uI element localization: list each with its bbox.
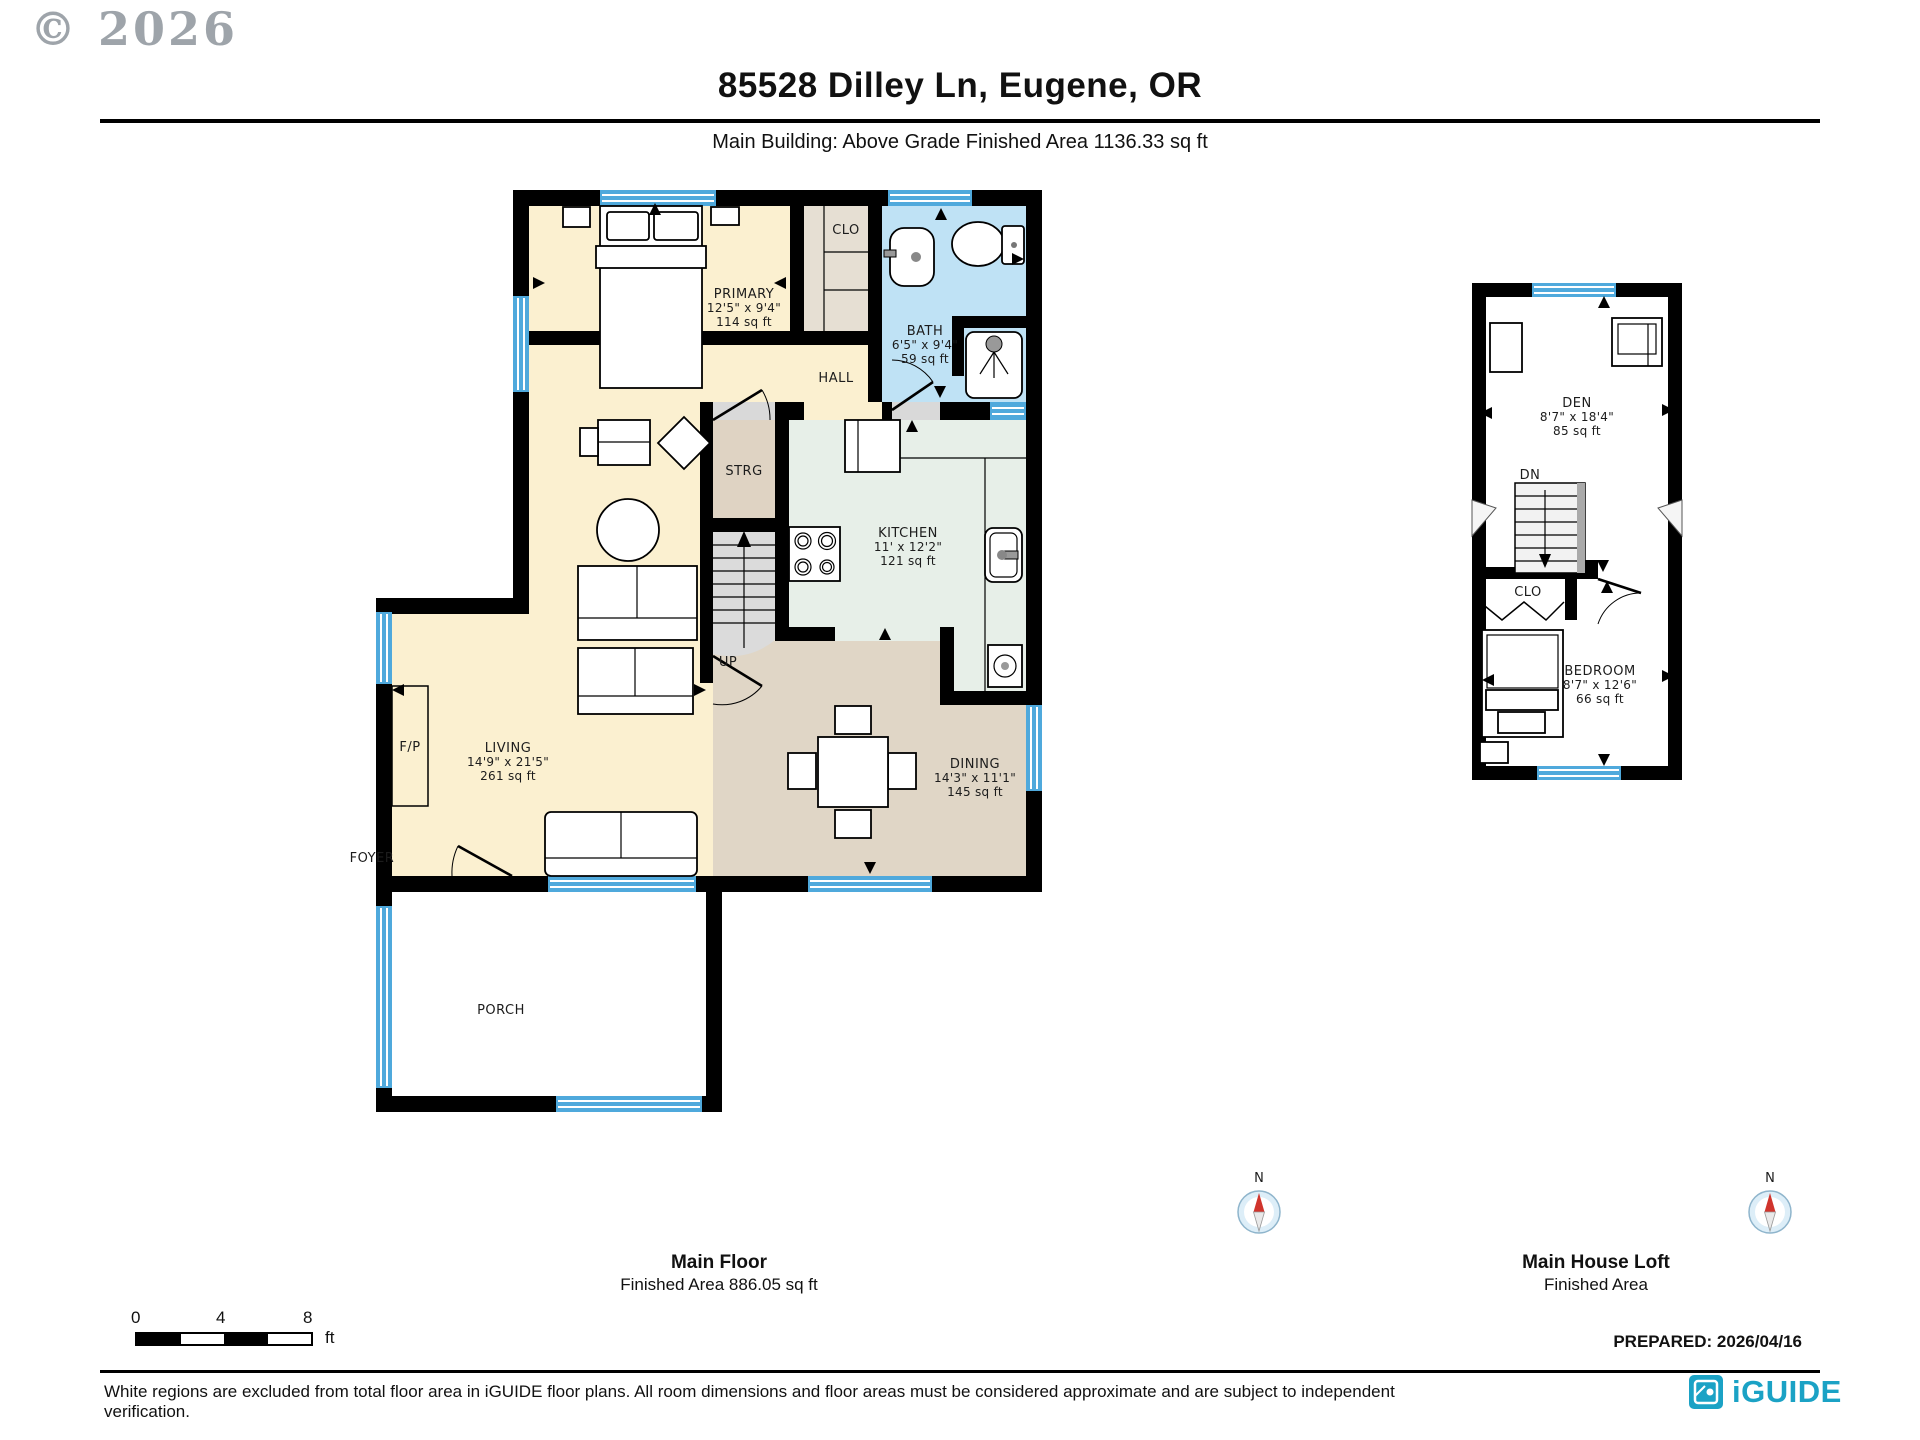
window <box>990 402 1026 420</box>
floor-plan-page: © 2026 85528 Dilley Ln, Eugene, OR Main … <box>0 0 1920 1440</box>
loft-bedroom-dims: 8'7" x 12'6" <box>1563 678 1637 692</box>
window <box>556 1096 702 1112</box>
loft-bedroom-area: 66 sq ft <box>1576 692 1624 706</box>
main-floor-area-caption: Finished Area 886.05 sq ft <box>519 1275 919 1295</box>
window <box>1532 283 1616 297</box>
nightstand <box>711 207 739 225</box>
page-title: 85528 Dilley Ln, Eugene, OR <box>0 66 1920 106</box>
stairs-down-label: DN <box>1520 468 1541 483</box>
building-area-subtitle: Main Building: Above Grade Finished Area… <box>0 131 1920 154</box>
loft-floor-plan: DEN 8'7" x 18'4" 85 sq ft DN CLO BEDROOM… <box>1450 270 1700 800</box>
main-floor-caption: Main Floor <box>519 1252 919 1274</box>
dining-area: 145 sq ft <box>947 785 1003 799</box>
primary-dims: 12'5" x 9'4" <box>707 301 781 315</box>
sofa <box>578 566 697 640</box>
window <box>808 876 932 892</box>
stairs-up-label: UP <box>719 655 737 670</box>
dining-dims: 14'3" x 11'1" <box>934 771 1016 785</box>
window <box>376 612 392 684</box>
fireplace-label: F/P <box>399 740 420 755</box>
dishwasher <box>988 645 1022 687</box>
closet-label: CLO <box>832 223 860 238</box>
north-label: N <box>1254 1171 1264 1186</box>
primary-area: 114 sq ft <box>716 315 772 329</box>
window <box>1537 766 1621 780</box>
hall-label: HALL <box>818 371 853 386</box>
stairs-down <box>1515 483 1585 573</box>
sofa <box>578 648 693 714</box>
scale-tick-8: 8 <box>303 1308 312 1328</box>
scale-unit: ft <box>325 1328 334 1348</box>
copyright-watermark: © 2026 <box>30 2 238 56</box>
iguide-logo-text: iGUIDE <box>1732 1374 1842 1410</box>
main-floor-plan: PRIMARY 12'5" x 9'4" 114 sq ft CLO BATH … <box>320 180 1080 1140</box>
stove <box>789 527 840 581</box>
kitchen-sink <box>985 528 1022 582</box>
scale-tick-0: 0 <box>131 1308 140 1328</box>
den-area: 85 sq ft <box>1553 424 1601 438</box>
window <box>376 906 392 1088</box>
refrigerator <box>845 420 900 472</box>
scale-tick-4: 4 <box>216 1308 225 1328</box>
kitchen-label: KITCHEN <box>878 526 938 541</box>
north-label: N <box>1765 1171 1775 1186</box>
compass-loft: N <box>1742 1166 1798 1244</box>
living-dims: 14'9" x 21'5" <box>467 755 549 769</box>
window <box>600 190 716 206</box>
bath-dims: 6'5" x 9'4" <box>892 338 958 352</box>
scale-bar-segments <box>135 1332 313 1346</box>
footer-disclaimer: White regions are excluded from total fl… <box>104 1382 1404 1422</box>
loft-caption: Main House Loft <box>1396 1252 1796 1274</box>
loft-bed <box>1482 630 1563 737</box>
bath-area: 59 sq ft <box>901 352 949 366</box>
loft-area-caption: Finished Area <box>1396 1275 1796 1295</box>
compass-main: N <box>1231 1166 1287 1244</box>
loft-bedroom-label: BEDROOM <box>1564 664 1635 679</box>
window <box>888 190 972 206</box>
scale-bar: 0 4 8 ft <box>135 1308 395 1358</box>
kitchen-area: 121 sq ft <box>880 554 936 568</box>
iguide-logo-icon <box>1688 1374 1724 1410</box>
den-dims: 8'7" x 18'4" <box>1540 410 1614 424</box>
footer-divider <box>100 1370 1820 1373</box>
prepared-date: PREPARED: 2026/04/16 <box>1613 1332 1802 1352</box>
primary-label: PRIMARY <box>714 287 774 302</box>
loft-small-box <box>1480 742 1508 763</box>
den-label: DEN <box>1562 396 1591 411</box>
window <box>513 296 529 392</box>
primary-bed <box>596 206 706 388</box>
title-divider <box>100 119 1820 123</box>
bath-label: BATH <box>907 324 944 339</box>
foyer-label: FOYER <box>350 851 395 866</box>
round-table <box>597 499 659 561</box>
dining-label: DINING <box>950 757 1000 772</box>
porch-label: PORCH <box>477 1003 525 1018</box>
kitchen-dims: 11' x 12'2" <box>874 540 942 554</box>
iguide-logo: iGUIDE <box>1688 1374 1842 1410</box>
living-area: 261 sq ft <box>480 769 536 783</box>
living-label: LIVING <box>485 741 532 756</box>
nightstand <box>563 207 590 227</box>
bath-sink <box>884 228 934 286</box>
sofa <box>545 812 697 876</box>
window <box>548 876 696 892</box>
storage-label: STRG <box>725 464 762 479</box>
loft-closet-label: CLO <box>1514 585 1542 600</box>
window <box>1026 705 1042 791</box>
